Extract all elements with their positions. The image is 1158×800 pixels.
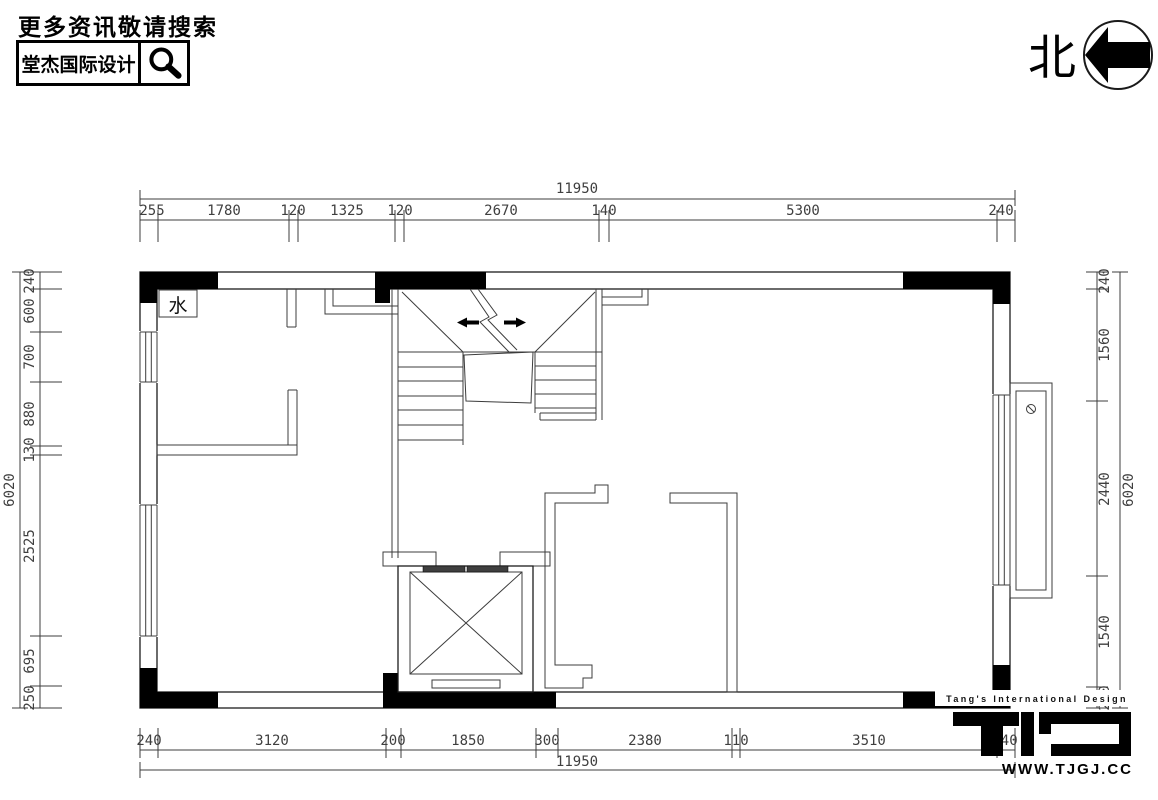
dim-top-lines xyxy=(140,199,1015,220)
dim-label: 5300 xyxy=(786,203,820,219)
water-meter-label: 水 xyxy=(168,295,187,317)
dim-chain-left: 6020 240 600 700 880 130 2525 695 250 xyxy=(2,268,62,710)
elevator xyxy=(383,552,550,692)
dim-label: 240 xyxy=(22,268,38,293)
elevator-sill xyxy=(432,680,500,688)
floor-plan-sheet: 11950 255 1780 120 1325 120 2670 140 530… xyxy=(0,0,1158,800)
niche-right-of-stairs xyxy=(602,289,648,305)
dim-label: 600 xyxy=(22,298,38,323)
brand-name: 堂杰国际设计 xyxy=(19,43,138,83)
tid-logo-block: Tang's International Design WWW.TJGJ.CC xyxy=(935,688,1145,780)
dim-label: 255 xyxy=(139,203,164,219)
dim-label: 110 xyxy=(723,733,748,749)
logo-letter-I xyxy=(1021,712,1034,756)
dim-label: 3120 xyxy=(255,733,289,749)
partition-left-room xyxy=(157,445,297,455)
magnifier-icon xyxy=(144,45,184,81)
dim-chain-top: 11950 255 1780 120 1325 120 2670 140 530… xyxy=(139,181,1015,242)
dim-label: 695 xyxy=(22,648,38,673)
dim-chain-right: 6020 240 1560 2440 1540 240 xyxy=(1086,268,1137,710)
dim-top-ticks xyxy=(140,190,1015,242)
inner-wall-outline xyxy=(157,289,993,692)
window-left-upper xyxy=(139,331,158,383)
dim-label: 200 xyxy=(380,733,405,749)
dim-label: 1540 xyxy=(1097,615,1113,649)
dim-right-total: 6020 xyxy=(1121,473,1137,507)
partition-lower-right xyxy=(670,493,737,692)
tid-logo-letters xyxy=(953,712,1131,756)
elevator-lobby-wall-right xyxy=(500,552,550,566)
dim-label: 1780 xyxy=(207,203,241,219)
stair-treads-left xyxy=(398,352,463,445)
floor-plan-drawing: 11950 255 1780 120 1325 120 2670 140 530… xyxy=(0,0,1158,800)
dim-label: 250 xyxy=(22,685,38,710)
dim-label: 120 xyxy=(280,203,305,219)
website-url: WWW.TJGJ.CC xyxy=(1002,761,1133,778)
dim-label: 2670 xyxy=(484,203,518,219)
staircase xyxy=(392,289,602,558)
window-right xyxy=(992,394,1011,586)
stair-direction-arrow-left xyxy=(457,318,479,328)
bay-window xyxy=(1010,383,1052,598)
dim-label: 1850 xyxy=(451,733,485,749)
search-icon xyxy=(141,43,187,83)
dim-label: 880 xyxy=(22,401,38,426)
dim-label: 2525 xyxy=(22,529,38,563)
dim-label: 240 xyxy=(1097,268,1113,293)
elevator-door-panel xyxy=(423,566,465,572)
search-prompt-title: 更多资讯敬请搜索 xyxy=(18,8,218,42)
elevator-lobby-wall-left xyxy=(383,552,436,566)
elevator-shaft xyxy=(398,566,533,692)
dim-bottom-total: 11950 xyxy=(556,754,598,770)
dim-top-total: 11950 xyxy=(556,181,598,197)
north-label: 北 xyxy=(1028,18,1076,88)
window-left-lower xyxy=(139,504,158,637)
dim-label: 240 xyxy=(136,733,161,749)
dim-label: 2440 xyxy=(1097,472,1113,506)
dim-label: 700 xyxy=(22,344,38,369)
stair-mid-landing xyxy=(464,352,533,403)
dim-label: 1325 xyxy=(330,203,364,219)
logo-letter-T-stem xyxy=(981,712,1003,756)
brand-search-box: 堂杰国际设计 xyxy=(16,40,190,86)
dim-label: 130 xyxy=(22,437,38,462)
dim-left-lines xyxy=(20,272,40,708)
dim-label: 3510 xyxy=(852,733,886,749)
dim-left-total: 6020 xyxy=(2,473,18,507)
north-arrow-icon xyxy=(1082,19,1155,92)
logo-letter-D xyxy=(1039,712,1131,756)
elevator-cross xyxy=(410,572,522,674)
dim-label: 140 xyxy=(591,203,616,219)
partition-lower-left xyxy=(545,485,608,688)
elevator-door-panel xyxy=(467,566,508,572)
dim-label: 1560 xyxy=(1097,328,1113,362)
outer-wall-outline xyxy=(140,272,1010,708)
structural-wall-fills xyxy=(140,272,1010,708)
dim-label: 120 xyxy=(387,203,412,219)
dim-label: 2380 xyxy=(628,733,662,749)
interior-partitions xyxy=(157,289,737,692)
dim-label: 240 xyxy=(988,203,1013,219)
outer-walls xyxy=(140,272,1010,708)
dim-chain-bottom: 11950 240 3120 200 1850 300 2380 110 351… xyxy=(136,728,1017,778)
stair-direction-arrow-right xyxy=(504,318,526,328)
tagline-text: Tang's International Design xyxy=(946,694,1128,704)
stair-treads-right xyxy=(535,352,596,413)
dim-label: 300 xyxy=(534,733,559,749)
partition-top-left xyxy=(287,289,297,445)
